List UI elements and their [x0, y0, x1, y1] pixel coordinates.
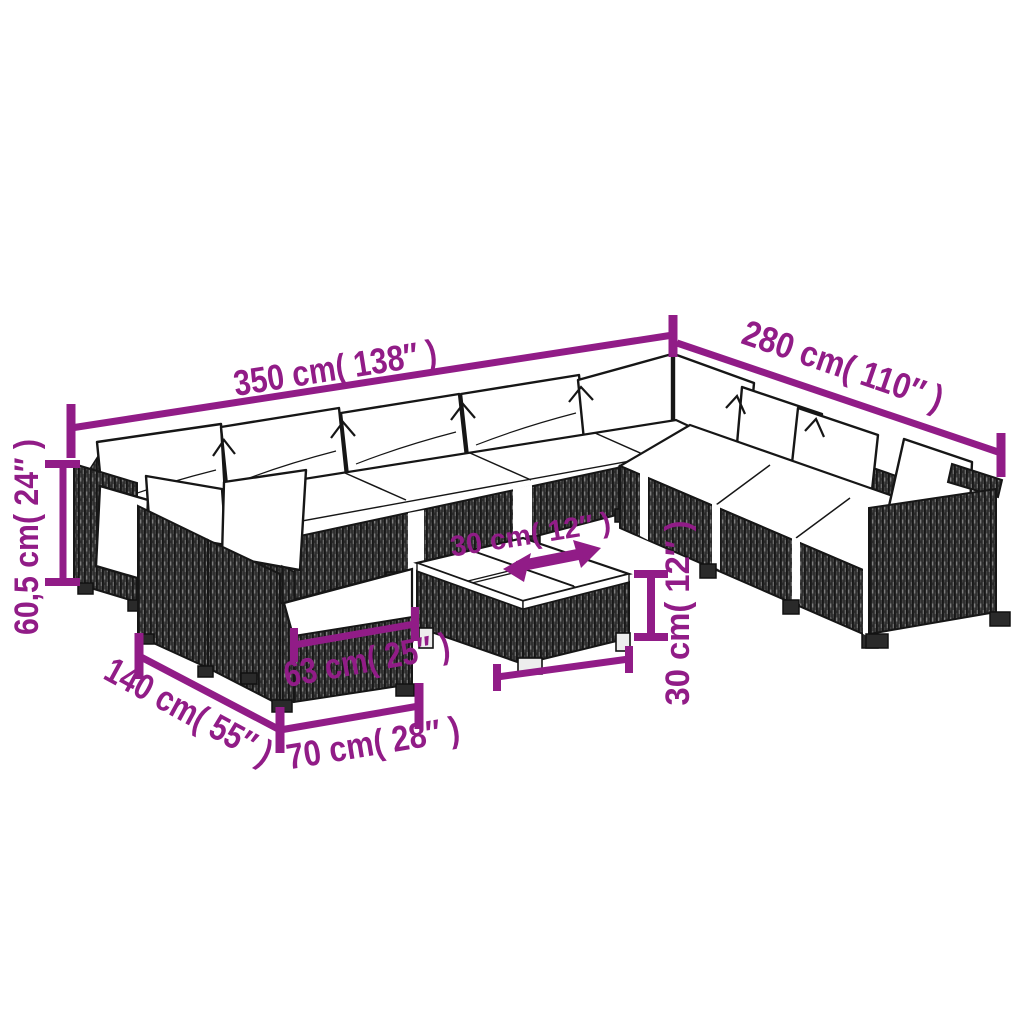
svg-text:30 cm( 12″ ): 30 cm( 12″ ) — [659, 521, 697, 706]
svg-text:60,5 cm( 24″ ): 60,5 cm( 24″ ) — [8, 439, 46, 635]
